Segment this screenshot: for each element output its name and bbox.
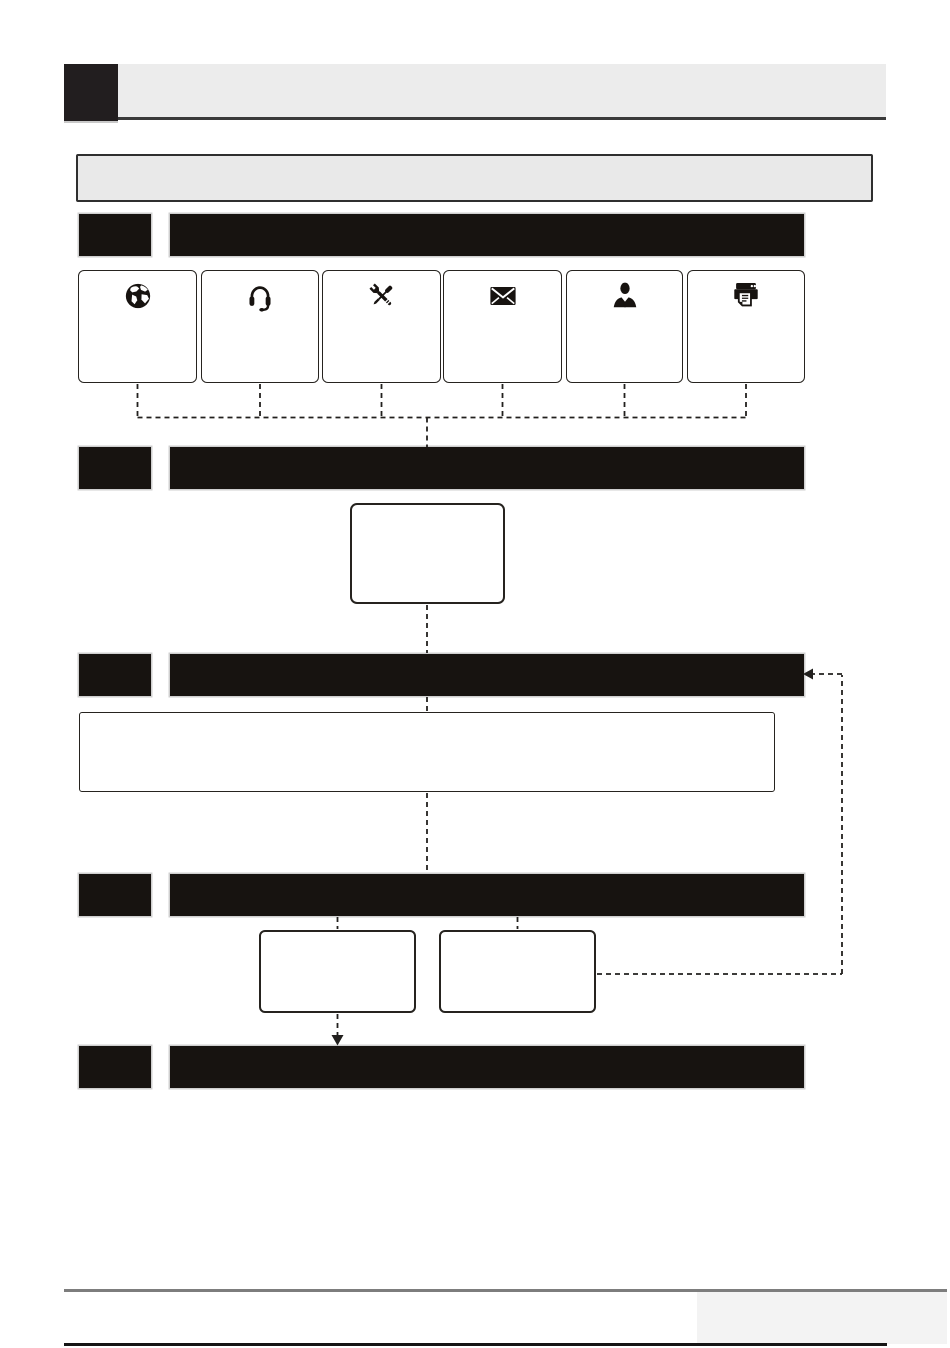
channel-box-businessman <box>566 270 683 383</box>
flow-step-box <box>350 503 505 604</box>
flow-result-box-left <box>259 930 416 1013</box>
down-arrow <box>332 1035 344 1046</box>
section-3-title-bar <box>170 654 804 696</box>
document-page <box>0 0 950 1348</box>
section-2-number-box <box>79 447 151 489</box>
section-1-number-box <box>79 214 151 256</box>
section-5-title-bar <box>170 1046 804 1088</box>
channel-box-tools <box>322 270 441 383</box>
channel-box-envelope <box>443 270 562 383</box>
channel-merge-connector <box>138 384 747 447</box>
headset-icon <box>242 278 278 314</box>
globe-icon <box>120 278 156 314</box>
businessman-icon <box>607 278 643 314</box>
section-4-title-bar <box>170 874 804 916</box>
footer-right-box <box>697 1292 947 1344</box>
footer-bottom-rule <box>64 1343 887 1346</box>
section-3-number-box <box>79 654 151 696</box>
tools-icon <box>364 278 400 314</box>
footer-top-rule <box>64 1289 947 1292</box>
channel-box-printer <box>687 270 805 383</box>
channel-box-globe <box>78 270 197 383</box>
envelope-icon <box>485 278 521 314</box>
section-4-number-box <box>79 874 151 916</box>
chapter-number-box <box>64 64 118 121</box>
flow-wide-note-box <box>79 712 775 792</box>
section-1-title-bar <box>170 214 804 256</box>
intro-text-box <box>76 154 873 202</box>
chapter-title-band <box>118 64 886 120</box>
left-arrow <box>803 669 813 680</box>
section-2-title-bar <box>170 447 804 489</box>
channel-box-headset <box>201 270 319 383</box>
section-5-number-box <box>79 1046 151 1088</box>
printer-icon <box>728 278 764 314</box>
flow-result-box-right <box>439 930 596 1013</box>
